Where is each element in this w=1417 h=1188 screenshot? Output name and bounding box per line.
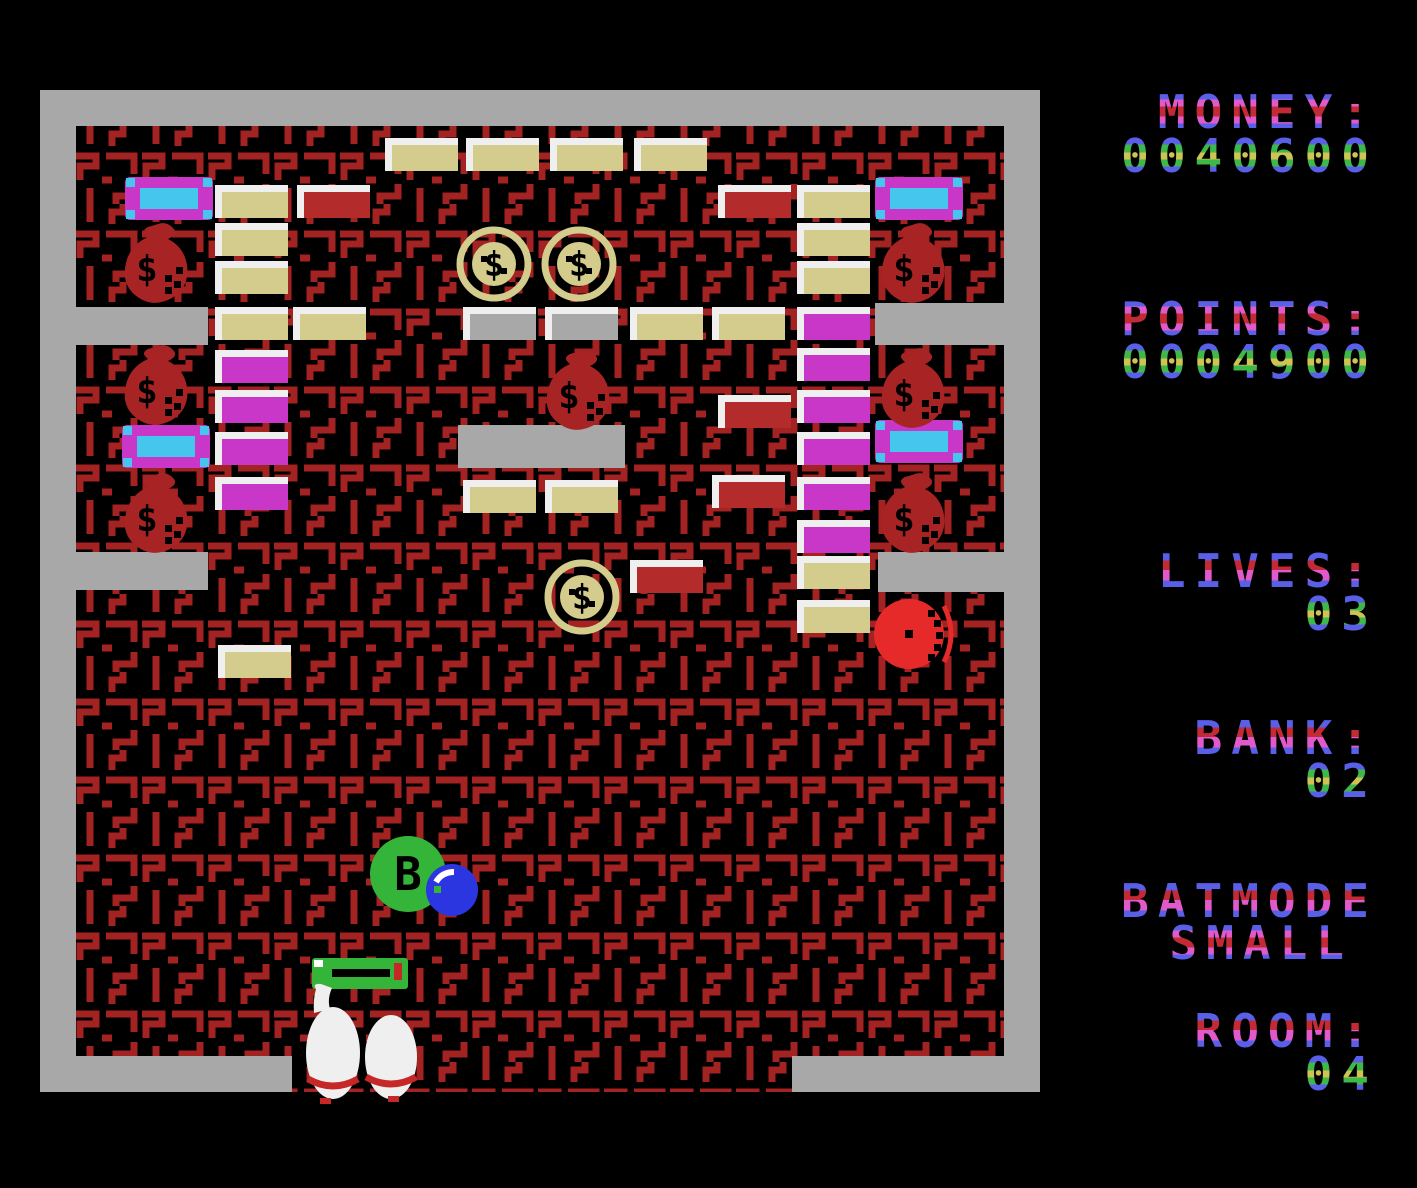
brick-cream <box>797 185 870 218</box>
brick-cream <box>797 556 870 589</box>
wall-bottom-right <box>792 1056 1040 1092</box>
brick-cream <box>634 138 707 171</box>
batmode-value: SMALL <box>1170 921 1353 965</box>
svg-text:$: $ <box>136 371 158 412</box>
svg-text:$: $ <box>558 376 580 417</box>
brick-magenta <box>215 350 288 383</box>
brick-cream <box>215 307 288 340</box>
playfield[interactable]: $ $ $ $ $ $ $ $ $ $ <box>40 90 1040 1092</box>
brick-gray <box>463 307 536 340</box>
money-bag-sprite: $ <box>875 223 955 307</box>
money-bag-sprite: $ <box>118 345 198 429</box>
brick-magenta <box>215 432 288 465</box>
brick-cream <box>550 138 623 171</box>
brick-magenta <box>797 432 870 465</box>
svg-text:$: $ <box>569 245 589 285</box>
coin-sprite: $ <box>455 225 533 303</box>
brick-magenta <box>797 307 870 340</box>
points-value: 0004900 <box>1121 340 1378 384</box>
ledge-lower-left <box>76 552 208 590</box>
wall-bottom-left <box>40 1056 292 1092</box>
svg-text:$: $ <box>893 249 915 290</box>
ledge-lower-right <box>878 552 1004 592</box>
svg-text:$: $ <box>484 245 504 285</box>
wall-left <box>40 90 76 1092</box>
wall-right <box>1004 90 1040 1092</box>
brick-cream <box>712 307 785 340</box>
red-ball-sprite <box>873 592 959 676</box>
brick-red <box>718 395 791 428</box>
ledge-upper-left <box>76 307 208 345</box>
money-value: 0040600 <box>1121 134 1378 178</box>
svg-text:$: $ <box>136 249 158 290</box>
money-bag-sprite: $ <box>118 473 198 557</box>
capsule-item <box>875 177 963 220</box>
brick-cream <box>215 223 288 256</box>
money-bag-sprite: $ <box>875 473 955 557</box>
brick-magenta <box>797 520 870 553</box>
brick-gray <box>545 307 618 340</box>
brick-cream <box>293 307 366 340</box>
room-value: 04 <box>1305 1052 1378 1096</box>
brick-cream <box>797 600 870 633</box>
money-bag-sprite: $ <box>540 350 620 434</box>
svg-text:B: B <box>394 847 422 901</box>
capsule-item <box>125 177 213 220</box>
brick-cream <box>797 261 870 294</box>
brick-magenta <box>797 477 870 510</box>
brick-cream <box>545 480 618 513</box>
brick-red <box>718 185 791 218</box>
coin-sprite: $ <box>543 558 621 636</box>
lives-value: 03 <box>1305 592 1378 636</box>
svg-text:$: $ <box>572 578 592 618</box>
brick-magenta <box>797 348 870 381</box>
wall-top <box>40 90 1040 126</box>
boots-sprite <box>296 983 422 1107</box>
bank-value: 02 <box>1305 759 1378 803</box>
brick-cream <box>385 138 458 171</box>
brick-red <box>297 185 370 218</box>
money-label: MONEY: <box>1158 90 1378 134</box>
brick-red <box>712 475 785 508</box>
svg-text:$: $ <box>136 499 158 540</box>
brick-cream <box>218 645 291 678</box>
svg-text:$: $ <box>893 499 915 540</box>
brick-cream <box>466 138 539 171</box>
brick-cream <box>630 307 703 340</box>
money-bag-sprite: $ <box>118 223 198 307</box>
ball-sprite <box>424 862 480 918</box>
coin-sprite: $ <box>540 225 618 303</box>
capsule-item <box>122 425 210 468</box>
brick-cream <box>463 480 536 513</box>
brick-cream <box>215 185 288 218</box>
money-bag-sprite: $ <box>875 348 955 432</box>
brick-magenta <box>215 477 288 510</box>
svg-text:$: $ <box>893 374 915 415</box>
brick-magenta <box>215 390 288 423</box>
brick-magenta <box>797 390 870 423</box>
brick-red <box>630 560 703 593</box>
brick-cream <box>215 261 288 294</box>
brick-cream <box>797 223 870 256</box>
ledge-upper-right <box>875 303 1004 345</box>
game-screen: $ $ $ $ $ $ $ $ $ $ <box>0 0 1417 1188</box>
